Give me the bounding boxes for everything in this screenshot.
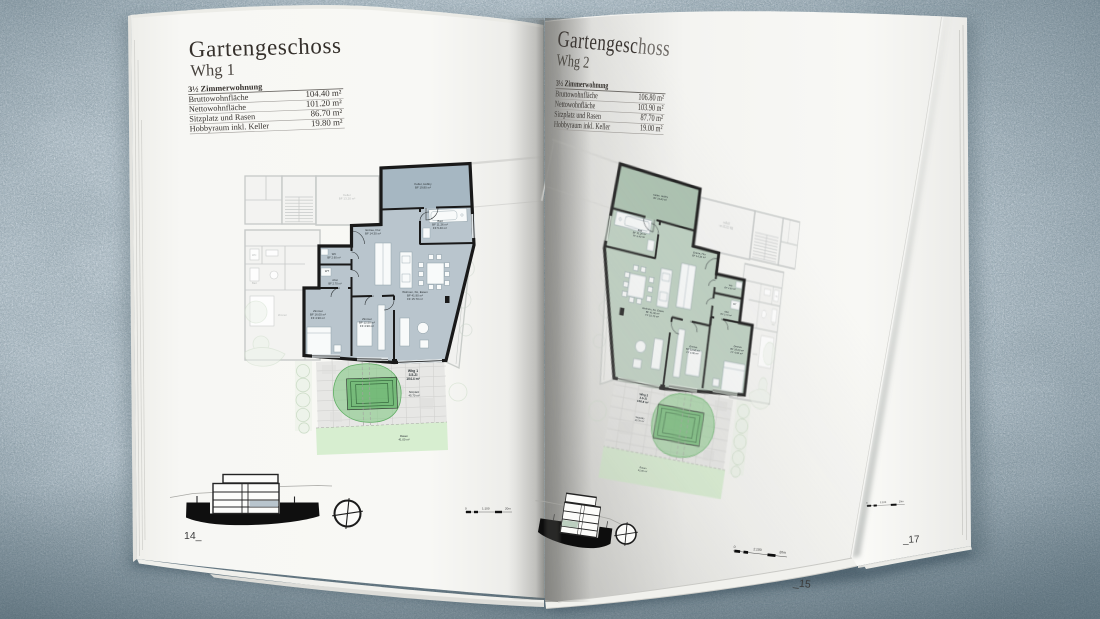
svg-text:1:100: 1:100 (753, 547, 762, 552)
svg-text:_15: _15 (792, 577, 812, 591)
svg-text:Whg 2: Whg 2 (556, 51, 590, 72)
svg-text:20m: 20m (779, 550, 786, 555)
svg-text:19.00 m²: 19.00 m² (640, 122, 663, 134)
